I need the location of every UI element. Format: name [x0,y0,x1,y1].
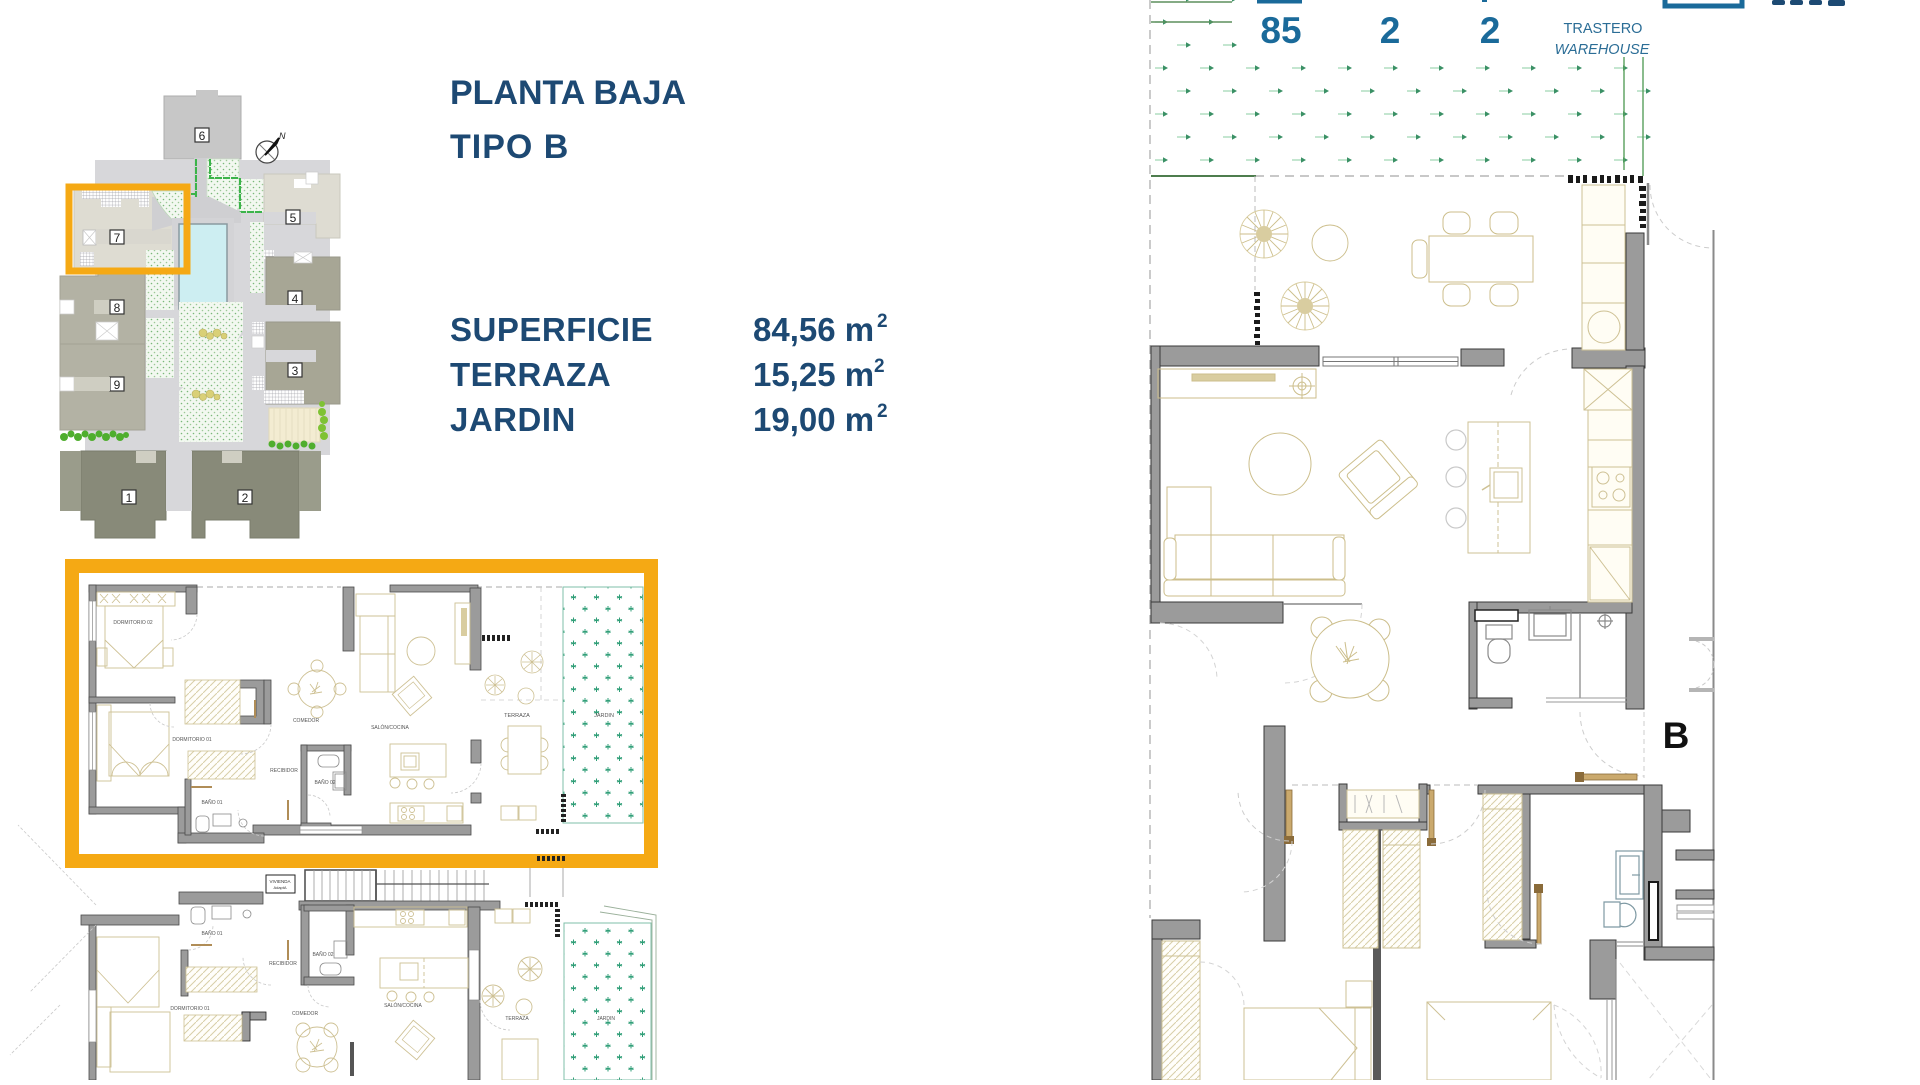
svg-text:2: 2 [1480,10,1501,51]
svg-text:COMEDOR: COMEDOR [292,1011,319,1017]
svg-text:BAÑO 02: BAÑO 02 [314,779,335,786]
svg-text:2: 2 [1380,10,1401,51]
svg-text:15,25 m: 15,25 m [753,356,874,393]
svg-text:VIVIENDA: VIVIENDA [269,879,290,884]
svg-text:SALÓN/COCINA: SALÓN/COCINA [384,1002,422,1009]
svg-text:JARDIN: JARDIN [594,713,614,719]
svg-text:JARDIN: JARDIN [597,1016,615,1022]
svg-text:6: 6 [199,129,206,143]
svg-text:TRASTERO: TRASTERO [1564,21,1643,37]
svg-text:RECIBIDOR: RECIBIDOR [270,768,298,774]
svg-text:PLANTA BAJA: PLANTA BAJA [450,74,686,112]
svg-text:SALÓN/COCINA: SALÓN/COCINA [371,724,409,731]
svg-text:BAÑO 02: BAÑO 02 [312,951,333,958]
svg-text:JARDIN: JARDIN [450,401,576,438]
svg-text:2: 2 [242,491,249,505]
svg-text:2: 2 [874,356,885,377]
svg-text:5: 5 [290,211,297,225]
svg-text:DORMITORIO 01: DORMITORIO 01 [172,737,212,743]
svg-text:2: 2 [877,311,888,332]
svg-text:RECIBIDOR: RECIBIDOR [269,961,297,967]
svg-text:85: 85 [1260,10,1301,51]
svg-text:N: N [279,131,286,141]
svg-text:SUPERFICIE: SUPERFICIE [450,311,653,348]
svg-text:BAÑO 01: BAÑO 01 [201,799,222,806]
svg-text:COMEDOR: COMEDOR [293,718,320,724]
svg-text:AdaptA: AdaptA [273,885,286,890]
svg-text:TERRAZA: TERRAZA [450,356,611,393]
svg-text:9: 9 [114,378,121,392]
svg-text:8: 8 [114,301,121,315]
svg-text:3: 3 [292,364,299,378]
svg-text:TERRAZA: TERRAZA [504,713,530,719]
svg-text:B: B [1663,715,1690,756]
svg-text:84,56 m: 84,56 m [753,311,874,348]
svg-text:19,00 m: 19,00 m [753,401,874,438]
svg-text:4: 4 [292,292,299,306]
svg-text:TERRAZA: TERRAZA [505,1016,529,1022]
svg-text:DORMITORIO 02: DORMITORIO 02 [113,620,153,626]
svg-text:7: 7 [114,231,121,245]
svg-text:2: 2 [877,401,888,422]
svg-text:TIPO B: TIPO B [450,128,569,166]
svg-text:WAREHOUSE: WAREHOUSE [1555,42,1650,58]
svg-text:1: 1 [126,491,133,505]
svg-text:DORMITORIO 01: DORMITORIO 01 [170,1006,210,1012]
